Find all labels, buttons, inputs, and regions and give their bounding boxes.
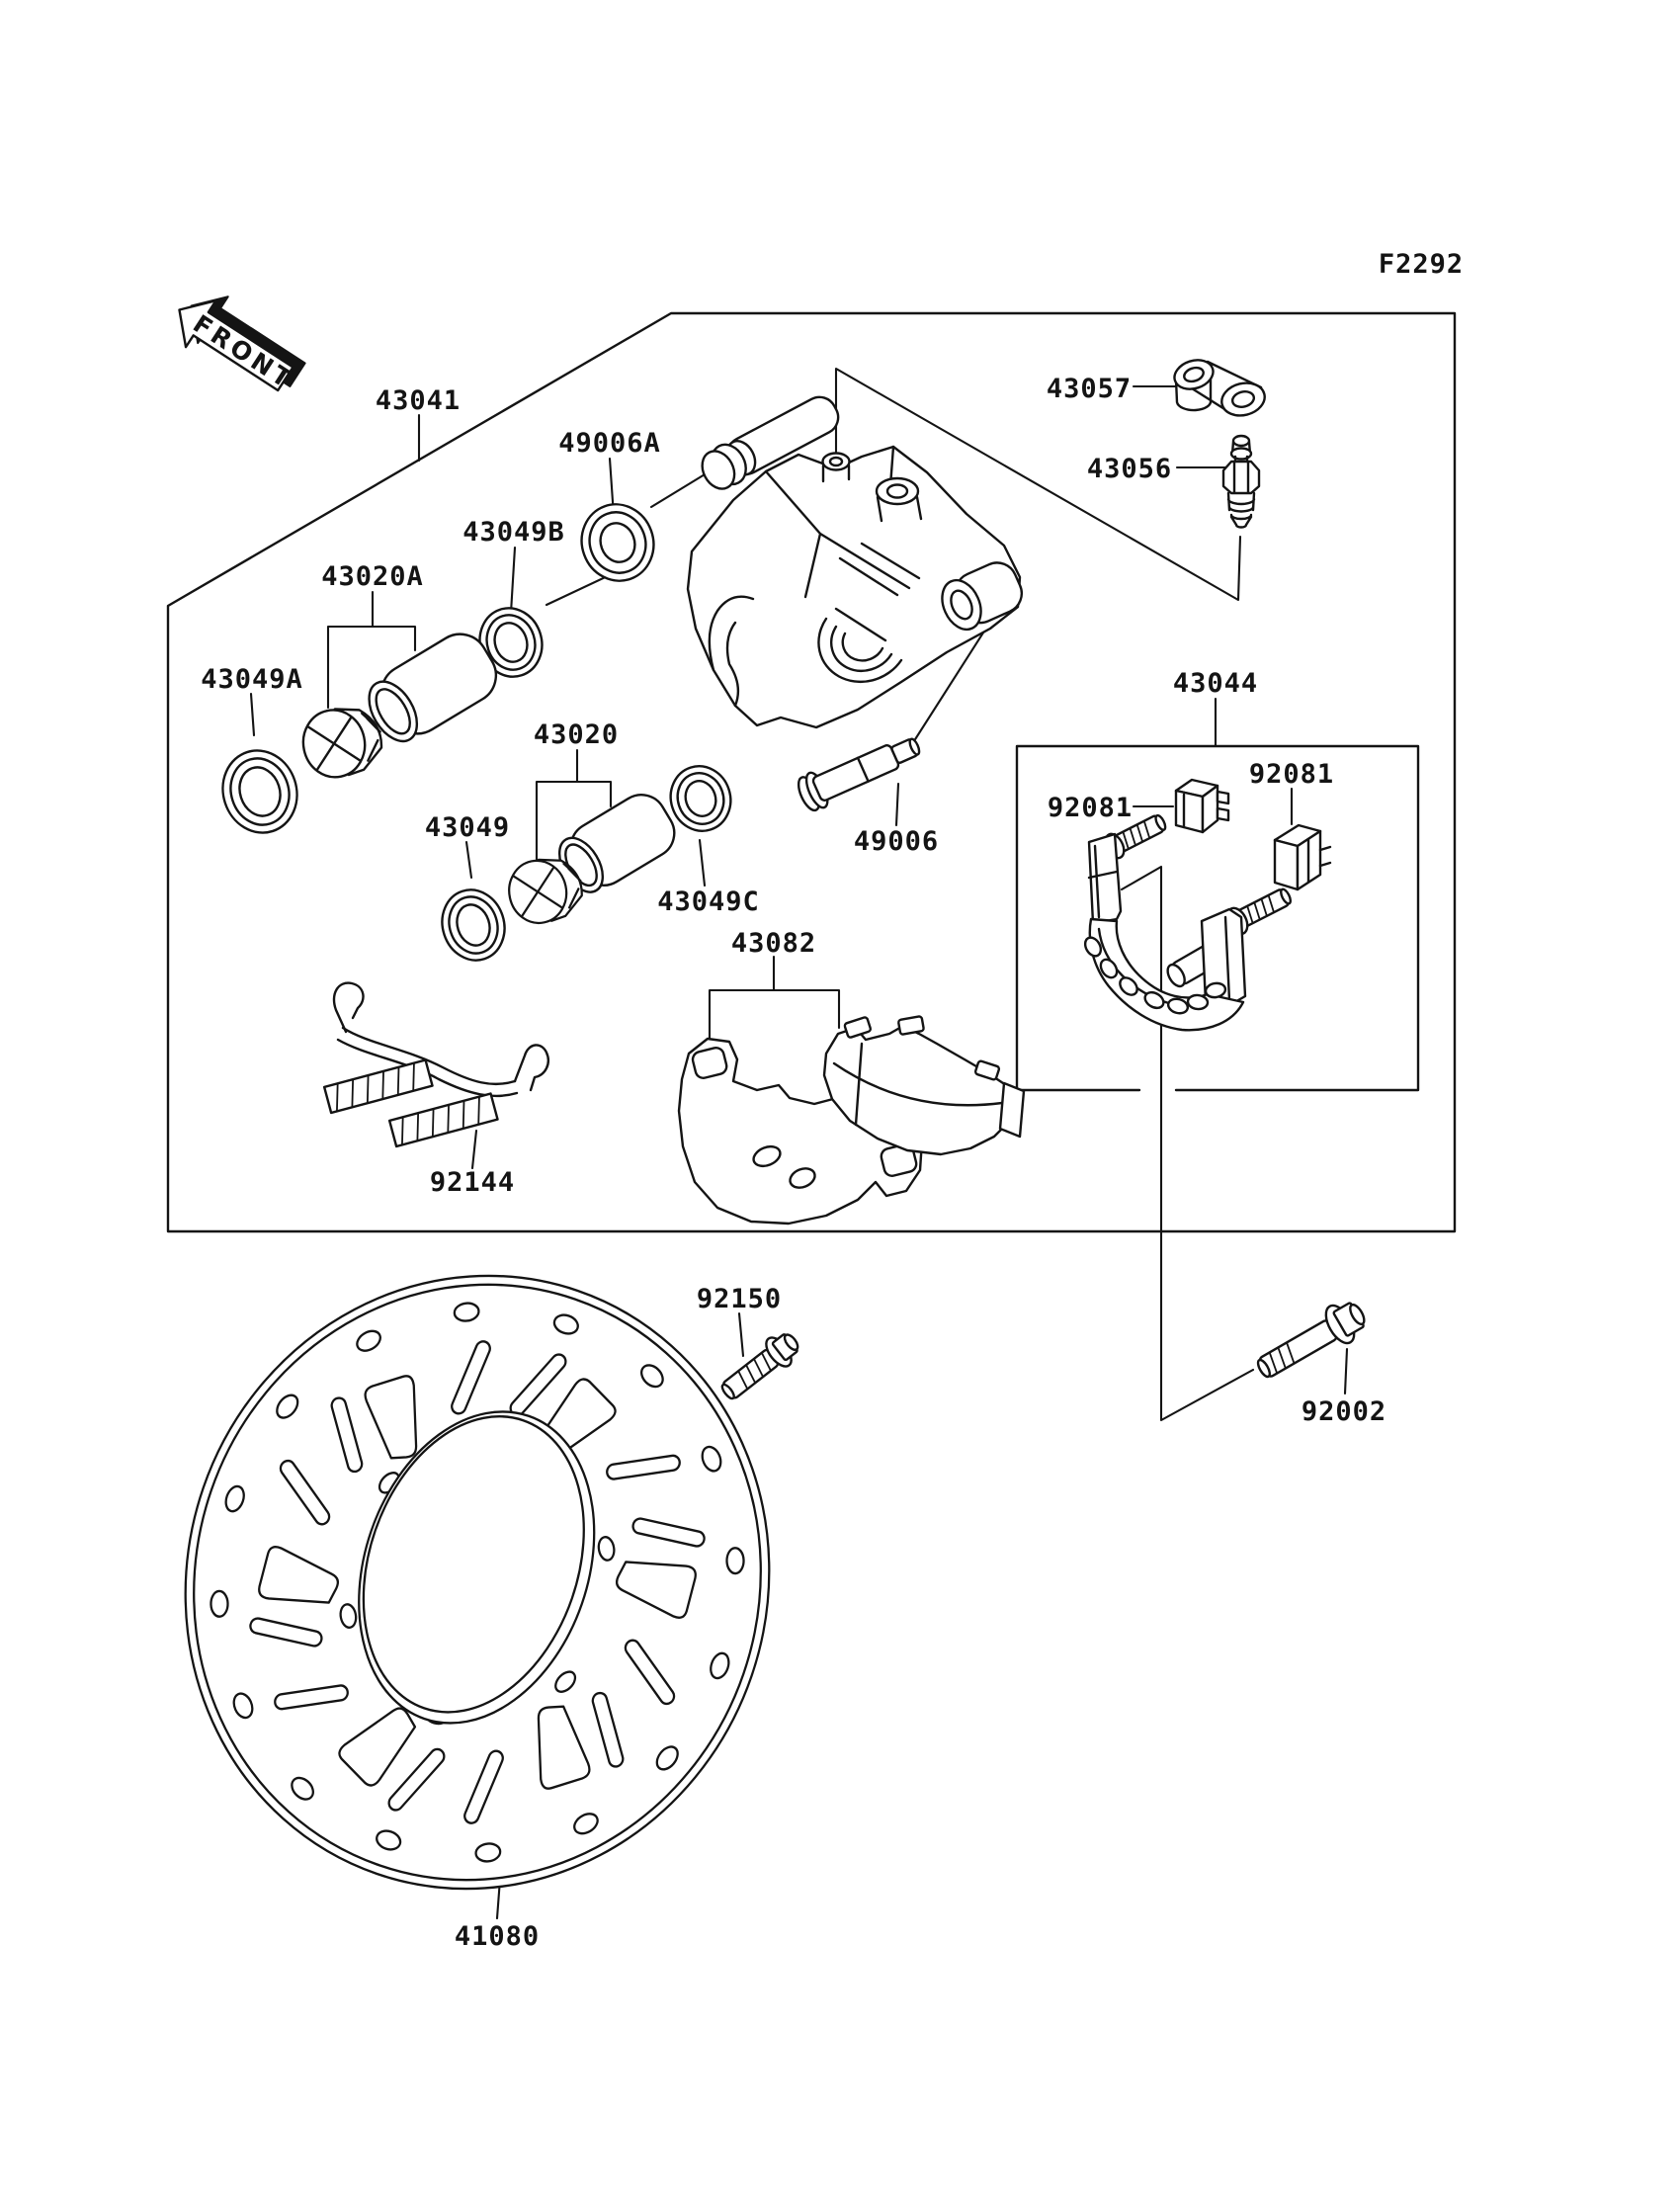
part-label-dust-seal-b: 43049B bbox=[462, 517, 565, 548]
part-label-dust-seal-c: 43049C bbox=[657, 887, 760, 917]
part-label-holder-clip-right: 92081 bbox=[1249, 759, 1334, 790]
leader-92150 bbox=[739, 1313, 743, 1356]
leader-43049b bbox=[511, 548, 515, 613]
bleeder-valve-drawing bbox=[1223, 436, 1259, 528]
leader-43049c bbox=[700, 840, 705, 886]
joint-link-drawing bbox=[1171, 356, 1269, 420]
brake-caliper-drawing bbox=[688, 389, 1028, 727]
pin-boot-drawing bbox=[571, 494, 664, 591]
holder-bolt-drawing bbox=[1250, 1294, 1372, 1388]
part-label-holder-clip-left: 92081 bbox=[1048, 793, 1133, 823]
caliper-holder-drawing bbox=[1082, 809, 1296, 1030]
holder-tower-left bbox=[1089, 834, 1121, 923]
pad-spring-drawing bbox=[324, 983, 548, 1146]
leader-92144 bbox=[472, 1131, 476, 1168]
part-label-joint-link: 43057 bbox=[1047, 374, 1132, 404]
leader-43049a bbox=[251, 694, 254, 735]
holder-clip-left-drawing bbox=[1176, 780, 1228, 832]
part-label-pin-boot: 49006A bbox=[558, 428, 661, 459]
pin-bolt-drawing bbox=[794, 728, 925, 814]
part-label-pad-set: 43082 bbox=[731, 928, 816, 959]
oil-seal-a-drawing bbox=[212, 741, 307, 843]
figure-code: F2292 bbox=[1379, 249, 1464, 280]
holder-clip-right-drawing bbox=[1275, 825, 1330, 889]
part-label-caliper-holder: 43044 bbox=[1173, 668, 1258, 699]
part-label-pin-bolt: 49006 bbox=[854, 826, 939, 857]
exploded-parts-diagram: FRONT bbox=[0, 0, 1680, 2197]
disc-bolt-drawing bbox=[715, 1326, 805, 1407]
part-label-holder-bolt: 92002 bbox=[1302, 1396, 1386, 1427]
part-label-pad-spring: 92144 bbox=[430, 1167, 515, 1198]
leader-43049 bbox=[466, 842, 471, 878]
part-label-piston-set-a: 43020A bbox=[321, 561, 424, 592]
part-label-bleeder-valve: 43056 bbox=[1087, 454, 1172, 484]
part-label-caliper-assembly: 43041 bbox=[376, 385, 461, 416]
part-label-oil-seal: 43049 bbox=[425, 812, 510, 843]
part-label-disc-bolt: 92150 bbox=[697, 1284, 782, 1314]
part-label-piston-set: 43020 bbox=[534, 719, 619, 750]
part-label-brake-disc: 41080 bbox=[455, 1921, 540, 1952]
front-arrow: FRONT bbox=[164, 279, 312, 406]
oil-seal-drawing bbox=[433, 882, 513, 969]
parts-diagram-page: FRONT bbox=[0, 0, 1680, 2197]
part-label-oil-seal-a: 43049A bbox=[201, 664, 303, 695]
brake-pads-drawing bbox=[679, 1016, 1024, 1224]
